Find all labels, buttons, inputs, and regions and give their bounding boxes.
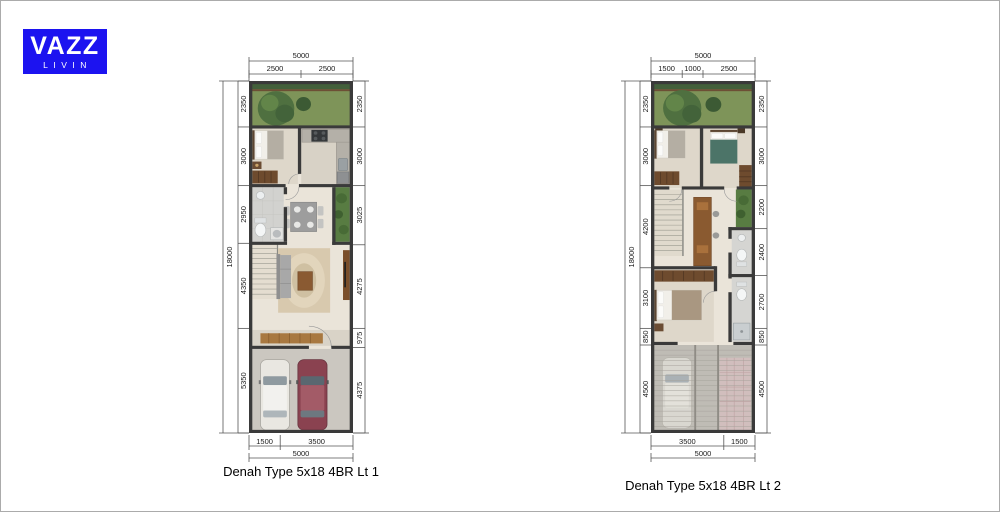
dim-label: 2350 [239, 96, 248, 113]
dim-label: 2500 [319, 64, 336, 73]
dim-label: 5350 [239, 372, 248, 389]
dimensions-lt1: 5000250025001500350050001800023503000295… [211, 41, 391, 501]
dim-label: 3000 [757, 148, 766, 165]
dim-label: 2350 [641, 96, 650, 113]
dim-label: 3100 [641, 290, 650, 307]
dim-label: 4350 [239, 278, 248, 295]
dim-label: 2950 [239, 206, 248, 223]
caption-lt2: Denah Type 5x18 4BR Lt 2 [613, 478, 793, 493]
dim-label: 3500 [308, 437, 325, 446]
dim-label: 18000 [627, 247, 636, 268]
dim-label: 2200 [757, 199, 766, 216]
dim-label: 2350 [355, 96, 364, 113]
dim-label: 5000 [695, 51, 712, 60]
dim-label: 5000 [695, 449, 712, 458]
dim-label: 3000 [355, 148, 364, 165]
brand-logo: VAZZ LIVIN [23, 29, 107, 74]
floorplan-lt2: 5000150010002500350015005000180002350300… [613, 41, 793, 507]
dim-label: 3500 [679, 437, 696, 446]
dim-label: 2500 [721, 64, 738, 73]
dim-label: 2700 [757, 294, 766, 311]
page: VAZZ LIVIN [0, 0, 1000, 512]
dim-label: 1000 [684, 64, 701, 73]
dim-label: 4375 [355, 382, 364, 399]
caption-lt1: Denah Type 5x18 4BR Lt 1 [211, 464, 391, 479]
dim-label: 1500 [731, 437, 748, 446]
dim-label: 3000 [239, 148, 248, 165]
dim-label: 2500 [267, 64, 284, 73]
dim-label: 4275 [355, 278, 364, 295]
dim-label: 850 [641, 330, 650, 343]
dim-label: 975 [355, 332, 364, 345]
dim-label: 2400 [757, 244, 766, 261]
dim-label: 3025 [355, 207, 364, 224]
dimensions-lt2: 5000150010002500350015005000180002350300… [613, 41, 793, 501]
dim-label: 18000 [225, 247, 234, 268]
dim-label: 5000 [293, 51, 310, 60]
dim-label: 2350 [757, 96, 766, 113]
brand-tagline: LIVIN [43, 61, 92, 70]
dim-label: 1500 [658, 64, 675, 73]
dim-label: 4200 [641, 218, 650, 235]
dim-label: 5000 [293, 449, 310, 458]
floorplan-lt1: 5000250025001500350050001800023503000295… [211, 41, 391, 507]
dim-label: 1500 [256, 437, 273, 446]
dim-label: 4500 [757, 381, 766, 398]
brand-name: VAZZ [30, 34, 99, 59]
dim-label: 4500 [641, 381, 650, 398]
dim-label: 850 [757, 330, 766, 343]
dim-label: 3000 [641, 148, 650, 165]
